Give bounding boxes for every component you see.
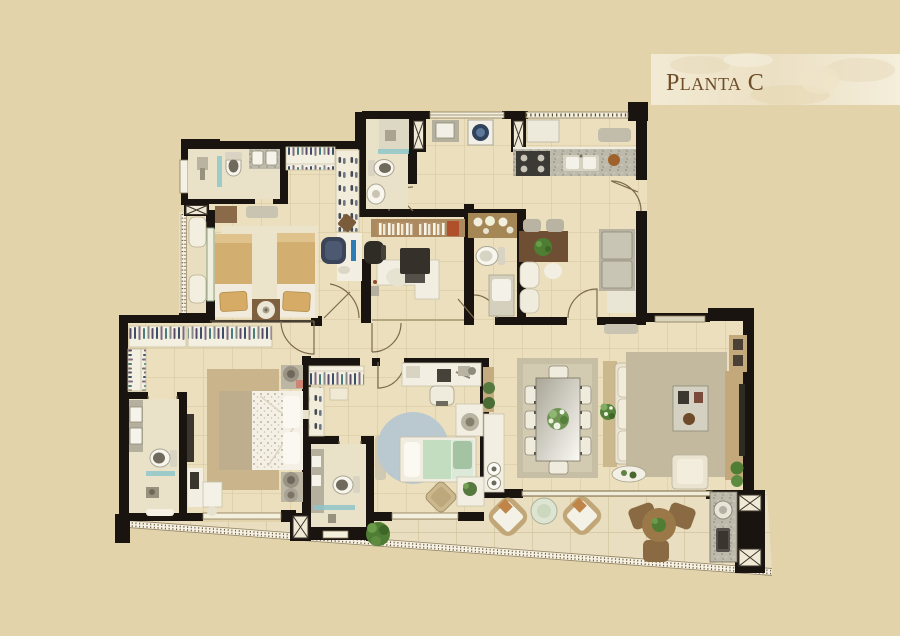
svg-text:PLANTA C: PLANTA C — [666, 70, 764, 96]
